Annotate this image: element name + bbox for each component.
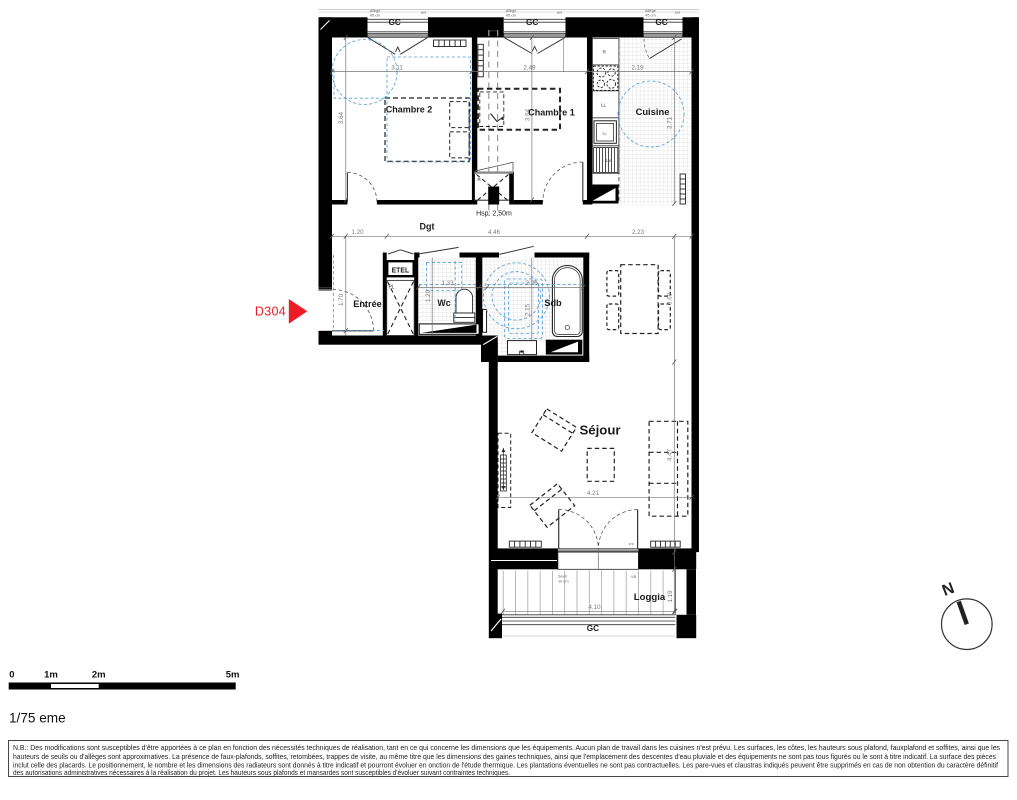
svg-text:VB: VB	[631, 574, 637, 579]
svg-text:GC: GC	[526, 18, 538, 27]
svg-text:4.47: 4.47	[667, 448, 674, 461]
svg-text:3.64: 3.64	[338, 111, 345, 124]
svg-text:Chambre 2: Chambre 2	[386, 104, 433, 114]
svg-text:1.20: 1.20	[351, 229, 364, 236]
svg-text:2.25: 2.25	[525, 280, 538, 287]
svg-text:3.69: 3.69	[667, 292, 674, 305]
svg-text:4.10: 4.10	[588, 604, 601, 611]
svg-text:Chambre 1: Chambre 1	[528, 107, 575, 117]
svg-text:5m: 5m	[226, 670, 240, 681]
svg-text:des autorisations administrati: des autorisations administratives nécess…	[13, 768, 510, 777]
svg-text:0: 0	[9, 670, 14, 681]
svg-text:VR: VR	[421, 10, 427, 15]
svg-text:1.19: 1.19	[667, 590, 674, 603]
svg-text:45 cm: 45 cm	[506, 13, 517, 18]
svg-text:3.11: 3.11	[391, 65, 403, 72]
svg-text:45 cm: 45 cm	[370, 13, 381, 18]
svg-text:VR: VR	[557, 10, 563, 15]
svg-text:4.21: 4.21	[587, 490, 600, 497]
svg-text:Dgt: Dgt	[420, 222, 435, 232]
svg-text:1.33: 1.33	[441, 280, 454, 287]
svg-text:Cuisine: Cuisine	[636, 106, 670, 117]
svg-text:1m: 1m	[44, 670, 58, 681]
svg-text:1.70: 1.70	[338, 293, 345, 306]
svg-text:GC: GC	[388, 18, 400, 27]
svg-text:2m: 2m	[92, 670, 106, 681]
svg-text:Sdb: Sdb	[544, 298, 562, 308]
svg-text:Hsp: 2,50m: Hsp: 2,50m	[476, 211, 512, 218]
svg-text:PF: PF	[629, 542, 635, 547]
svg-text:Wc: Wc	[437, 298, 450, 308]
svg-text:45 cm: 45 cm	[645, 13, 656, 18]
svg-text:2.19: 2.19	[631, 65, 644, 72]
svg-text:Ev: Ev	[603, 132, 607, 136]
svg-text:PL: PL	[389, 285, 395, 291]
svg-text:Séjour: Séjour	[579, 423, 620, 438]
svg-text:N.B.: Des modifications sont s: N.B.: Des modifications sont susceptible…	[13, 743, 1000, 752]
svg-text:GC: GC	[655, 18, 667, 27]
svg-text:10 cm: 10 cm	[558, 579, 569, 584]
svg-text:D304: D304	[255, 305, 286, 319]
svg-text:2.49: 2.49	[523, 65, 536, 72]
svg-text:Entrée: Entrée	[353, 299, 382, 309]
svg-text:1/75 eme: 1/75 eme	[9, 711, 66, 726]
svg-text:ETEL: ETEL	[392, 268, 410, 275]
svg-text:LL: LL	[601, 102, 607, 108]
svg-text:Loggia: Loggia	[634, 592, 666, 603]
svg-text:VR: VR	[675, 10, 681, 15]
svg-text:1.20: 1.20	[425, 289, 432, 302]
svg-text:4.46: 4.46	[488, 229, 501, 236]
svg-text:2.15: 2.15	[524, 303, 531, 316]
svg-text:3.71: 3.71	[667, 116, 674, 129]
svg-text:2.23: 2.23	[632, 229, 645, 236]
svg-text:R: R	[603, 50, 607, 56]
svg-text:hauteurs de seuils ou d'allège: hauteurs de seuils ou d'allèges sont app…	[13, 752, 996, 761]
svg-text:GC: GC	[587, 624, 599, 633]
